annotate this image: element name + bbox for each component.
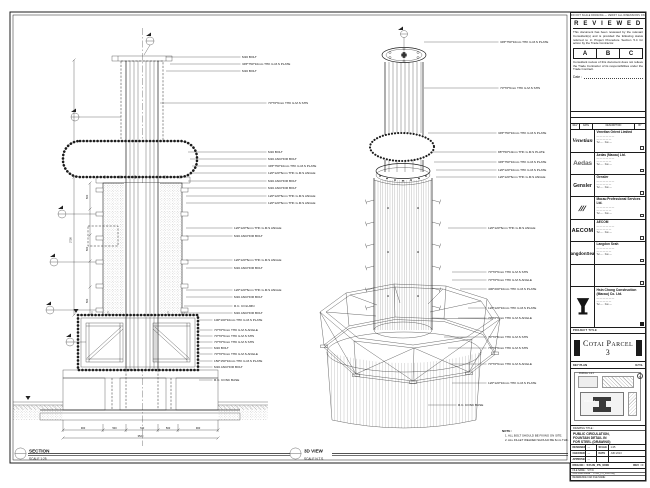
consultant-address: Tel — · Fax —: [597, 253, 644, 256]
dimension-text: 3520: [138, 434, 144, 438]
consultant-info: Venetian Orient Limited — — — — — — — — …: [595, 130, 645, 151]
part-label: 345*750*10mm THK G.M.S PLATE: [498, 160, 546, 164]
review-date-row: Date :: [573, 75, 643, 79]
dimension-text: 720: [140, 426, 145, 430]
description-col: DESCRIPTION: [593, 124, 635, 130]
part-label: 70*70*6mm THK G.M.S SHS: [214, 340, 254, 344]
drawing-title: PUBLIC CIRCULATION, FOUNTAIN DETAIL IN F…: [571, 431, 645, 445]
key-plan: PARCEL 1 & 2 PARCEL 3 N: [571, 369, 645, 426]
iso-view-scale: SCALE N.T.S.: [304, 457, 324, 461]
part-label: 70*70*6mm THK G.M.S ANGLE: [214, 328, 258, 332]
consultant-address: Tel — · Fax —: [597, 231, 644, 234]
part-label: 120*120*10mm THK G.M.S PLATE: [488, 381, 536, 385]
consultant-info: [595, 265, 645, 286]
status-checkbox: [640, 169, 644, 173]
section-view-scale: SCALE 1:25: [29, 457, 47, 461]
date-fill-line: [584, 76, 643, 79]
general-notes: NOTE : 1. ALL BOLT SHOULD BE FIXING ON S…: [502, 429, 569, 442]
part-label: 345*750*10mm THK G.M.S PLATE: [242, 62, 290, 66]
part-label: 345*750*10mm THK G.M.S PLATE: [500, 40, 548, 44]
consultant-info: Macau Professional Services Ltd. — — — —…: [595, 197, 645, 218]
ornament-medallion-icon: [635, 339, 643, 357]
consultant-logo: AECOM: [571, 220, 595, 241]
part-label: 345*750*10mm THK G.M.S PLATE: [498, 131, 546, 135]
part-label: 120*120*6mm THK G.M.S ANGLE: [234, 288, 281, 292]
part-label: 120*120*10mm THK G.M.S PLATE: [498, 168, 546, 172]
part-label: M16 ANCHOR BOLT: [268, 179, 297, 183]
rev-code: C: [641, 463, 643, 467]
consultant-logo: Venetian: [571, 130, 595, 151]
part-label: 70*70*6mm THK G.M.S ANGLE: [488, 316, 532, 320]
file-label: REFERENCE CAD FILE NAME :: [573, 477, 607, 479]
part-label: 70*70*6mm THK G.M.S ANGLE: [214, 352, 258, 356]
part-label: 70*70*6mm THK G.M.S SHS: [488, 270, 528, 274]
consultant-row: /// Macau Professional Services Ltd. — —…: [571, 197, 645, 219]
contractor-info: Hsin Chong Construction (Macau) Co. Ltd.…: [595, 287, 645, 327]
dwg-number: SYLW_PS_0000: [587, 463, 610, 467]
status-checkbox: [640, 281, 644, 285]
status-checkbox: [640, 191, 644, 195]
review-status-options: A B C: [573, 48, 643, 59]
consultant-logo: Gensler: [571, 175, 595, 196]
part-label: M16 BOLT: [242, 55, 257, 59]
dimension-text: 900: [81, 426, 86, 430]
field-value: 1:25: [609, 445, 645, 450]
dimension-text: 500: [112, 426, 117, 430]
status-checkbox: [640, 214, 644, 218]
field-label: SCALE: [597, 445, 609, 450]
date-label: Date :: [573, 75, 582, 79]
field-label: APPROVED: [571, 457, 586, 462]
key-plan-parcel-block: [602, 376, 634, 388]
key-plan-header: KEY PLAN N.T.S.: [571, 362, 645, 369]
part-label: 70*70*6mm THK G.M.S SHS: [268, 101, 308, 105]
part-label: 70*70*6mm THK G.M.S SHS: [500, 86, 540, 90]
part-label: 120*120*6mm THK G.M.S ANGLE: [234, 258, 281, 262]
part-label: 120*120*6mm THK G.M.S ANGLE: [268, 171, 315, 175]
drawing-title-line: FOR STEEL (DRAWING): [573, 440, 643, 444]
review-stamp: R E V I E W E D This document has been r…: [571, 19, 645, 112]
consultant-logo: [571, 265, 595, 286]
section-view-drawing: [13, 28, 268, 446]
dimension-text: 500: [166, 426, 171, 430]
consultant-row: [571, 265, 645, 286]
part-label: 120*120*6mm THK G.M.S ANGLE: [268, 194, 315, 198]
part-label: 120*120*10mm THK G.M.S PLATE: [488, 306, 536, 310]
key-plan-parcel-label: PARCEL 1 & 2: [579, 373, 594, 375]
status-option-b: B: [597, 49, 620, 58]
field-value: —: [586, 457, 597, 462]
consultant-info: Aedas (Macau) Ltd. — — — — — — — — — — —…: [595, 153, 645, 174]
view-title-bar: SECTION SCALE 1:25 3D VIEW SCALE N.T.S.: [15, 448, 568, 461]
part-label: 70*70*6mm THK G.M.S ANGLE: [488, 362, 532, 366]
part-label: M16 ANCHOR BOLT: [268, 157, 297, 161]
part-label: 120*120*6mm THK G.M.S ANGLE: [488, 226, 535, 230]
consultant-info: AECOM — — — — — — — — — — — Tel — · Fax …: [595, 220, 645, 241]
part-label: M16 ANCHOR BOLT: [234, 266, 263, 270]
key-plan-site-block: [580, 392, 624, 416]
review-stamp-text: This document has been reviewed by the r…: [573, 31, 643, 46]
key-plan-building-footprint: [593, 397, 611, 412]
part-label: 345*750*10mm THK G.M.S PLATE: [268, 164, 316, 168]
consultant-address: Tel — · Fax —: [597, 186, 644, 189]
part-label: M16 BOLT: [268, 150, 283, 154]
by-col: BY: [635, 124, 645, 130]
file-value: SYLW: [587, 470, 593, 472]
revision-header: REV DATE DESCRIPTION BY: [571, 124, 645, 130]
rev-col: REV: [571, 124, 580, 130]
dimension-text: 500: [85, 194, 89, 199]
part-label: M16 ANCHOR BOLT: [214, 365, 243, 369]
part-label: M16 ANCHOR BOLT: [234, 234, 263, 238]
drawing-title-block: DRAWING TITLE : PUBLIC CIRCULATION, FOUN…: [571, 426, 645, 480]
date-col: DATE: [580, 124, 593, 130]
drawing-sheet: SECTION SCALE 1:25 3D VIEW SCALE N.T.S. …: [0, 0, 650, 488]
dimension-text: 500: [85, 298, 89, 303]
part-label: 70*70*6mm THK G.M.S SHS: [488, 346, 528, 350]
part-label: M16 BOLT: [214, 346, 229, 350]
status-checkbox: [640, 146, 644, 150]
contractor-mark: [640, 322, 644, 326]
revision-value: REV : C: [633, 463, 643, 467]
part-label: R.C. CONC BASE: [214, 378, 239, 382]
consultant-address: Tel — · Fax —: [597, 163, 644, 166]
contractor-logo: [571, 287, 595, 327]
contractor-address: Tel — · Fax —: [597, 303, 644, 306]
contractor-name: Hsin Chong Construction (Macau) Co. Ltd.: [597, 289, 644, 297]
status-checkbox: [640, 259, 644, 263]
field-label: DESIGNED: [571, 445, 586, 450]
part-label: M16 ANCHOR BOLT: [268, 186, 297, 190]
project-name: Cotai Parcel 3: [581, 339, 636, 357]
status-option-c: C: [620, 49, 642, 58]
part-label: 70*70*6mm THK G.M.S SHS: [488, 335, 528, 339]
section-view-title: SECTION: [29, 448, 50, 453]
field-label: [597, 457, 609, 462]
note-line: 1. ALL BOLT SHOULD BE FIXING ON SITE.: [505, 434, 562, 438]
key-plan-scale: N.T.S.: [635, 362, 643, 368]
consultant-logo: ///: [571, 197, 595, 218]
iso-view-title: 3D VIEW: [304, 448, 324, 453]
part-label: 88*750*10mm THK G.M.S PLATE: [498, 150, 545, 154]
consultant-name: Macau Professional Services Ltd.: [597, 198, 644, 205]
consultant-address: Tel — · Fax —: [597, 212, 644, 215]
field-label: CHECKED: [571, 451, 586, 456]
drawing-canvas: SECTION SCALE 1:25 3D VIEW SCALE N.T.S. …: [0, 0, 650, 488]
note-line: 2. ALL FILLET WELDED SHOULD BE 6mm THK.: [505, 438, 569, 442]
part-label: 120*120*6mm THK G.M.S ANGLE: [234, 226, 281, 230]
status-option-a: A: [574, 49, 597, 58]
part-label: 100*100*10mm THK G.M.S PLATE: [214, 318, 262, 322]
part-label: R.C. COLUMN: [234, 304, 254, 308]
part-label: 150*150*10mm THK G.M.S PLATE: [214, 359, 262, 363]
consultant-row: Venetian Venetian Orient Limited — — — —…: [571, 130, 645, 152]
file-value: SYLW_PS_0000.dwg: [593, 473, 615, 475]
ornament-medallion-icon: [573, 339, 581, 357]
contractor-block: Hsin Chong Construction (Macau) Co. Ltd.…: [571, 287, 645, 328]
revision-table: REV DATE DESCRIPTION BY: [571, 112, 645, 130]
consultant-logo: Aedas: [571, 153, 595, 174]
trophy-icon: [575, 296, 591, 318]
part-label: 120*120*6mm THK G.M.S ANGLE: [268, 201, 315, 205]
review-stamp-text: Consultant review of this document does …: [573, 61, 643, 72]
consultant-info: Langdon Seah — — — — — — — — — — — Tel —…: [595, 242, 645, 263]
title-block-strip: DO NOT SCALE DRAWING — VERIFY ALL DIMENS…: [570, 12, 646, 481]
key-plan-parcel-block: [578, 376, 598, 388]
dwg-label: DWG NO :: [573, 464, 586, 467]
field-value: JUN 2013: [609, 451, 645, 456]
consultant-row: AECOM AECOM — — — — — — — — — — — Tel — …: [571, 220, 645, 242]
key-plan-parcel-block: [628, 392, 637, 416]
consultant-row: Aedas Aedas (Macau) Ltd. — — — — — — — —…: [571, 153, 645, 175]
dimension-text: 2750: [69, 237, 73, 243]
consultant-row: Gensler Gensler — — — — — — — — — — — Te…: [571, 175, 645, 197]
part-label: 120*120*6mm THK G.M.S ANGLE: [498, 175, 545, 179]
status-checkbox: [640, 236, 644, 240]
consultant-logo: LangdonSeah: [571, 242, 595, 263]
consultant-address: Tel — · Fax —: [597, 141, 644, 144]
field-value: —: [586, 451, 597, 456]
dimension-text: 500: [85, 246, 89, 251]
project-banner: Cotai Parcel 3: [571, 334, 645, 362]
dimension-text: 900: [196, 426, 201, 430]
rev-label: REV :: [633, 463, 640, 467]
part-label: R.C. CONC BASE: [458, 403, 483, 407]
review-stamp-title: R E V I E W E D: [573, 21, 643, 30]
field-value: [609, 457, 645, 462]
key-plan-label: KEY PLAN: [573, 362, 587, 368]
file-label: FILE NAME :: [573, 470, 586, 472]
part-label: M16 ANCHOR BOLT: [234, 295, 263, 299]
part-label: 70*70*6mm THK G.M.S SHS: [214, 334, 254, 338]
field-label: DATE: [597, 451, 609, 456]
part-label: 70*70*6mm THK G.M.S ANGLE: [488, 278, 532, 282]
part-label: M16 BOLT: [242, 69, 257, 73]
consultant-row: LangdonSeah Langdon Seah — — — — — — — —…: [571, 242, 645, 264]
key-plan-parcel-label: PARCEL 3: [584, 401, 595, 403]
iso-view-drawing: [320, 27, 500, 429]
file-label: CAD FILE NAME :: [573, 473, 592, 475]
consultant-list: Venetian Venetian Orient Limited — — — —…: [571, 130, 645, 287]
part-label: 400*200*10mm THK G.M.S PLATE: [488, 287, 536, 291]
part-label: M16 ANCHOR BOLT: [234, 311, 263, 315]
file-row: REFERENCE CAD FILE NAME :: [571, 476, 645, 480]
notes-heading: NOTE :: [502, 429, 512, 433]
field-value: —: [586, 445, 597, 450]
consultant-info: Gensler — — — — — — — — — — — Tel — · Fa…: [595, 175, 645, 196]
north-arrow-icon: N: [637, 373, 643, 379]
